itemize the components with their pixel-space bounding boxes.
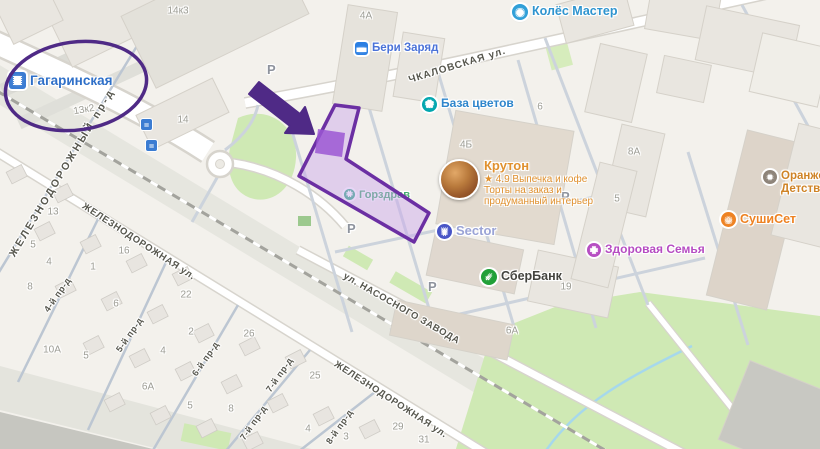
poi-name: База цветов: [441, 97, 514, 110]
poi-oranzh-detstvo[interactable]: ✦ОранжеДетство: [763, 170, 820, 196]
street-label: ЖЕЛЕЗНОДОРОЖНАЯ ул.: [332, 359, 449, 440]
house-number-label: 16: [118, 246, 129, 257]
house-number-label: 6: [113, 299, 119, 310]
poi-name: Оранже: [781, 170, 820, 183]
poi-name: Горздрав: [359, 189, 410, 201]
poi-name: Крутон: [484, 159, 593, 174]
poi-name: Колёс Мастер: [532, 4, 617, 18]
street-label: ЖЕЛЕЗНОДОРОЖНЫЙ пр-д: [7, 86, 117, 259]
station-marker-icon[interactable]: ≣: [146, 140, 157, 151]
flower-icon: ✿: [422, 97, 437, 112]
house-number-label: 4: [305, 424, 311, 435]
house-number-label: 4: [46, 257, 52, 268]
poi-koles-master[interactable]: ◉Колёс Мастер: [512, 4, 617, 20]
sushi-icon: ☺: [721, 212, 736, 227]
street-label: 7-й пр-д: [264, 356, 295, 394]
yen-icon: ¥: [437, 224, 452, 239]
house-number-label: 2: [188, 327, 194, 338]
poi-sberbank[interactable]: ✓СберБанк: [481, 269, 562, 285]
poi-subtitle: Торты на заказ и: [484, 185, 593, 196]
poi-sushiset[interactable]: ☺СушиСет: [721, 212, 796, 227]
street-label: ул. НАСОСНОГО ЗАВОДА: [341, 271, 461, 347]
pet-shop-icon: ✦: [763, 170, 777, 184]
street-label: 6-й пр-д: [190, 340, 221, 378]
house-number-label: 5: [83, 351, 89, 362]
house-number-label: 13: [47, 207, 58, 218]
map-canvas[interactable]: ЧКАЛОВСКАЯ ул.ЖЕЛЕЗНОДОРОЖНАЯ ул.ЖЕЛЕЗНО…: [0, 0, 820, 449]
house-number-label: 31: [418, 435, 429, 446]
medical-cross-icon: ✚: [587, 243, 601, 257]
street-label: ЖЕЛЕЗНОДОРОЖНАЯ ул.: [80, 201, 197, 282]
station-name: Гагаринская: [30, 73, 112, 88]
station-marker-icon[interactable]: ≣: [141, 119, 152, 130]
house-number-label: 8: [228, 404, 234, 415]
sber-check-icon: ✓: [481, 269, 497, 285]
parking-label: Р: [428, 279, 437, 294]
street-label: 4-й пр-д: [42, 276, 73, 314]
house-number-label: 29: [392, 422, 403, 433]
house-number-label: 8А: [628, 147, 640, 158]
house-number-label: 25: [309, 371, 320, 382]
house-number-label: 10А: [43, 345, 61, 356]
street-label: 8-й пр-д: [324, 408, 355, 446]
poi-zdorovaya-semya[interactable]: ✚Здоровая Семья: [587, 243, 705, 257]
house-number-label: 8: [27, 282, 33, 293]
poi-subtitle: ★ 4.9 Выпечка и кофе: [484, 174, 593, 185]
poi-name: Бери Заряд: [372, 42, 438, 55]
house-number-label: 4А: [360, 11, 372, 22]
train-station-icon: ≣: [9, 72, 26, 89]
battery-icon: ▬: [355, 42, 368, 55]
bakery-photo-icon: [439, 159, 480, 200]
poi-name: СушиСет: [740, 212, 796, 226]
poi-name: Здоровая Семья: [605, 243, 705, 256]
house-number-label: 14к3: [167, 6, 188, 17]
house-number-label: 6А: [506, 326, 518, 337]
poi-name: СберБанк: [501, 269, 562, 283]
house-number-label: 5: [614, 194, 620, 205]
house-number-label: 19: [560, 282, 571, 293]
poi-kruton[interactable]: Крутон★ 4.9 Выпечка и кофеТорты на заказ…: [439, 159, 593, 207]
house-number-label: 1: [90, 262, 96, 273]
car-wheel-icon: ◉: [512, 4, 528, 20]
poi-subtitle: продуманный интерьер: [484, 196, 593, 207]
house-number-label: 26: [243, 329, 254, 340]
parking-label: Р: [267, 62, 276, 77]
station-label-gagarinskaya[interactable]: ≣Гагаринская: [9, 72, 112, 89]
poi-gorzdrav[interactable]: ✚Горздрав: [344, 189, 410, 201]
house-number-label: 4: [160, 346, 166, 357]
house-number-label: 6: [537, 102, 543, 113]
poi-baza-cvetov[interactable]: ✿База цветов: [422, 97, 514, 112]
house-number-label: 14: [177, 115, 188, 126]
poi-name: Sector: [456, 224, 496, 239]
house-number-label: 5: [30, 240, 36, 251]
poi-sector[interactable]: ¥Sector: [437, 224, 496, 239]
house-number-label: 4Б: [460, 140, 472, 151]
pharmacy-cross-icon: ✚: [344, 189, 355, 200]
poi-beri-zaryad[interactable]: ▬Бери Заряд: [355, 42, 438, 55]
house-number-label: 3: [343, 432, 349, 443]
house-number-label: 5: [187, 401, 193, 412]
map-label-layer: ЧКАЛОВСКАЯ ул.ЖЕЛЕЗНОДОРОЖНАЯ ул.ЖЕЛЕЗНО…: [0, 0, 820, 449]
street-label: 7-й пр-д: [238, 404, 269, 442]
poi-subtitle: Детство: [781, 183, 820, 196]
house-number-label: 6А: [142, 382, 154, 393]
parking-label: Р: [347, 221, 356, 236]
house-number-label: 22: [180, 290, 191, 301]
street-label: 5-й пр-д: [114, 316, 145, 354]
